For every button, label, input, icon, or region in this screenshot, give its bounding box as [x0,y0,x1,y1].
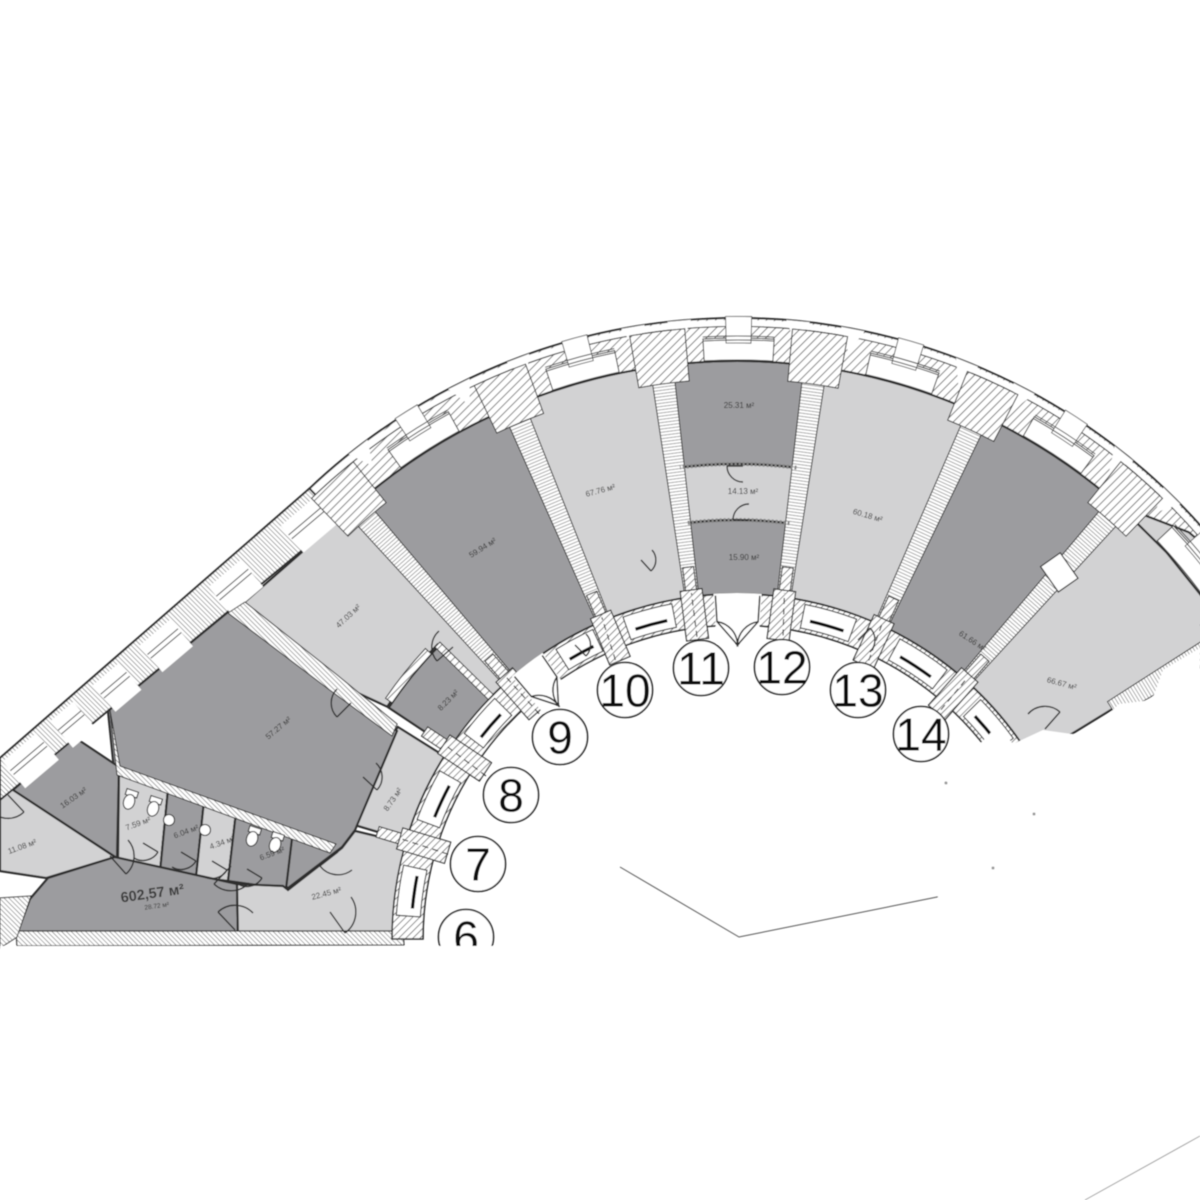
svg-text:7: 7 [465,839,491,891]
svg-text:14: 14 [895,709,946,761]
svg-text:11: 11 [677,643,725,695]
svg-text:10: 10 [599,665,650,717]
svg-text:13: 13 [832,665,883,717]
svg-text:14.13 м²: 14.13 м² [728,487,759,496]
svg-text:15.90 м²: 15.90 м² [729,553,760,562]
svg-text:12: 12 [756,642,807,694]
svg-text:9: 9 [547,712,573,764]
svg-text:8: 8 [498,770,524,822]
svg-text:25.31 м²: 25.31 м² [724,401,755,410]
